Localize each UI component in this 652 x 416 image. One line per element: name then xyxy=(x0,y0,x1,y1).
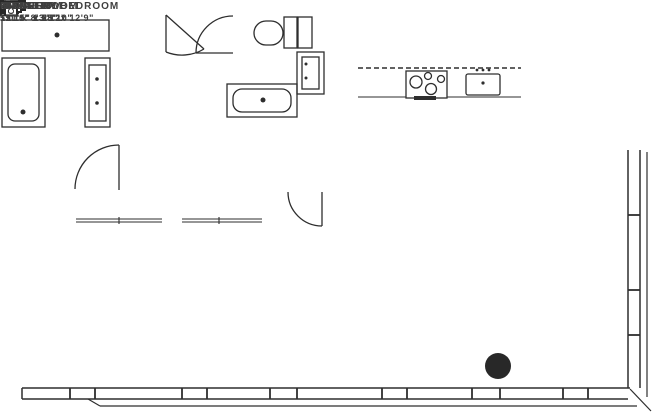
bedroom-door-swing xyxy=(288,192,322,226)
window-band-right xyxy=(628,150,640,388)
facade-outline xyxy=(88,152,651,411)
room-name: BEDROOM xyxy=(3,1,62,12)
closet-track-lines xyxy=(76,217,262,224)
master-shower xyxy=(85,58,110,127)
window-band-bottom xyxy=(22,388,630,399)
stove xyxy=(406,71,447,100)
kitchen-sink xyxy=(466,69,500,95)
master-bedroom-door-swing xyxy=(75,145,119,190)
round-column xyxy=(485,353,511,379)
master-bathtub xyxy=(2,58,45,127)
room-dims: 11'10" x 13'2" xyxy=(0,13,66,25)
window-mullions-right xyxy=(628,215,640,335)
bedroom-label: BEDROOM 11'10" x 13'2" xyxy=(0,0,66,25)
entry-door-swing xyxy=(166,15,204,55)
toilet xyxy=(254,17,312,48)
fixture-linework xyxy=(0,0,652,416)
bath-sink xyxy=(297,52,324,94)
bathtub xyxy=(227,84,297,117)
floor-plan: CL WD SO/WR REF DW CL CL CL CL xyxy=(0,0,652,416)
window-mullions-bottom xyxy=(70,388,588,399)
